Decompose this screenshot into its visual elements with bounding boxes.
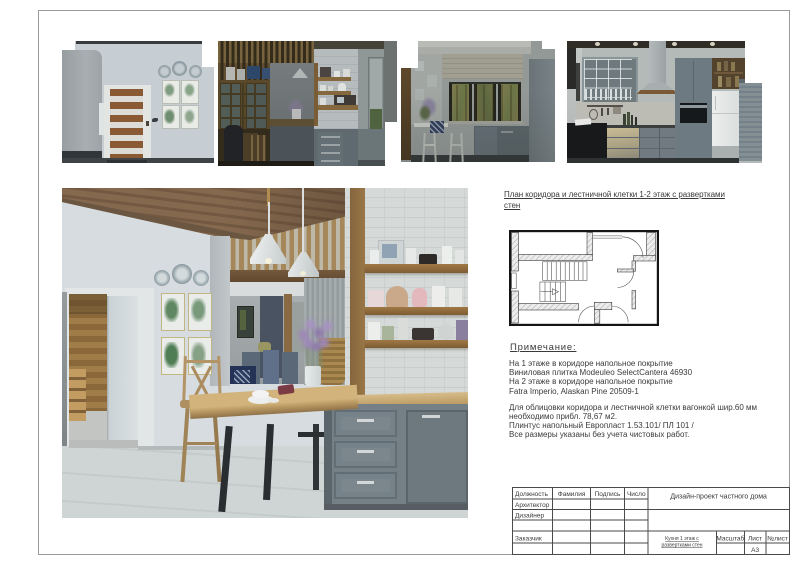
svg-text:Фамилия: Фамилия <box>558 491 586 498</box>
svg-text:Лист: Лист <box>748 535 762 542</box>
svg-text:Кухня 1 этаж с: Кухня 1 этаж с <box>665 536 699 542</box>
svg-text:Заказчик: Заказчик <box>515 536 542 543</box>
svg-text:Архитектор: Архитектор <box>515 502 550 509</box>
svg-text:Подпись: Подпись <box>595 491 621 498</box>
svg-text:Число: Число <box>627 491 646 498</box>
svg-text:Дизайнер: Дизайнер <box>515 511 544 519</box>
svg-text:А3: А3 <box>751 547 759 554</box>
svg-text:Должность: Должность <box>515 491 549 498</box>
svg-text:развертками стен: развертками стен <box>661 543 702 549</box>
svg-text:Масштаб: Масштаб <box>716 534 744 542</box>
svg-text:Дизайн-проект частного дома: Дизайн-проект частного дома <box>670 492 767 500</box>
svg-text:№лист: №лист <box>767 535 788 542</box>
